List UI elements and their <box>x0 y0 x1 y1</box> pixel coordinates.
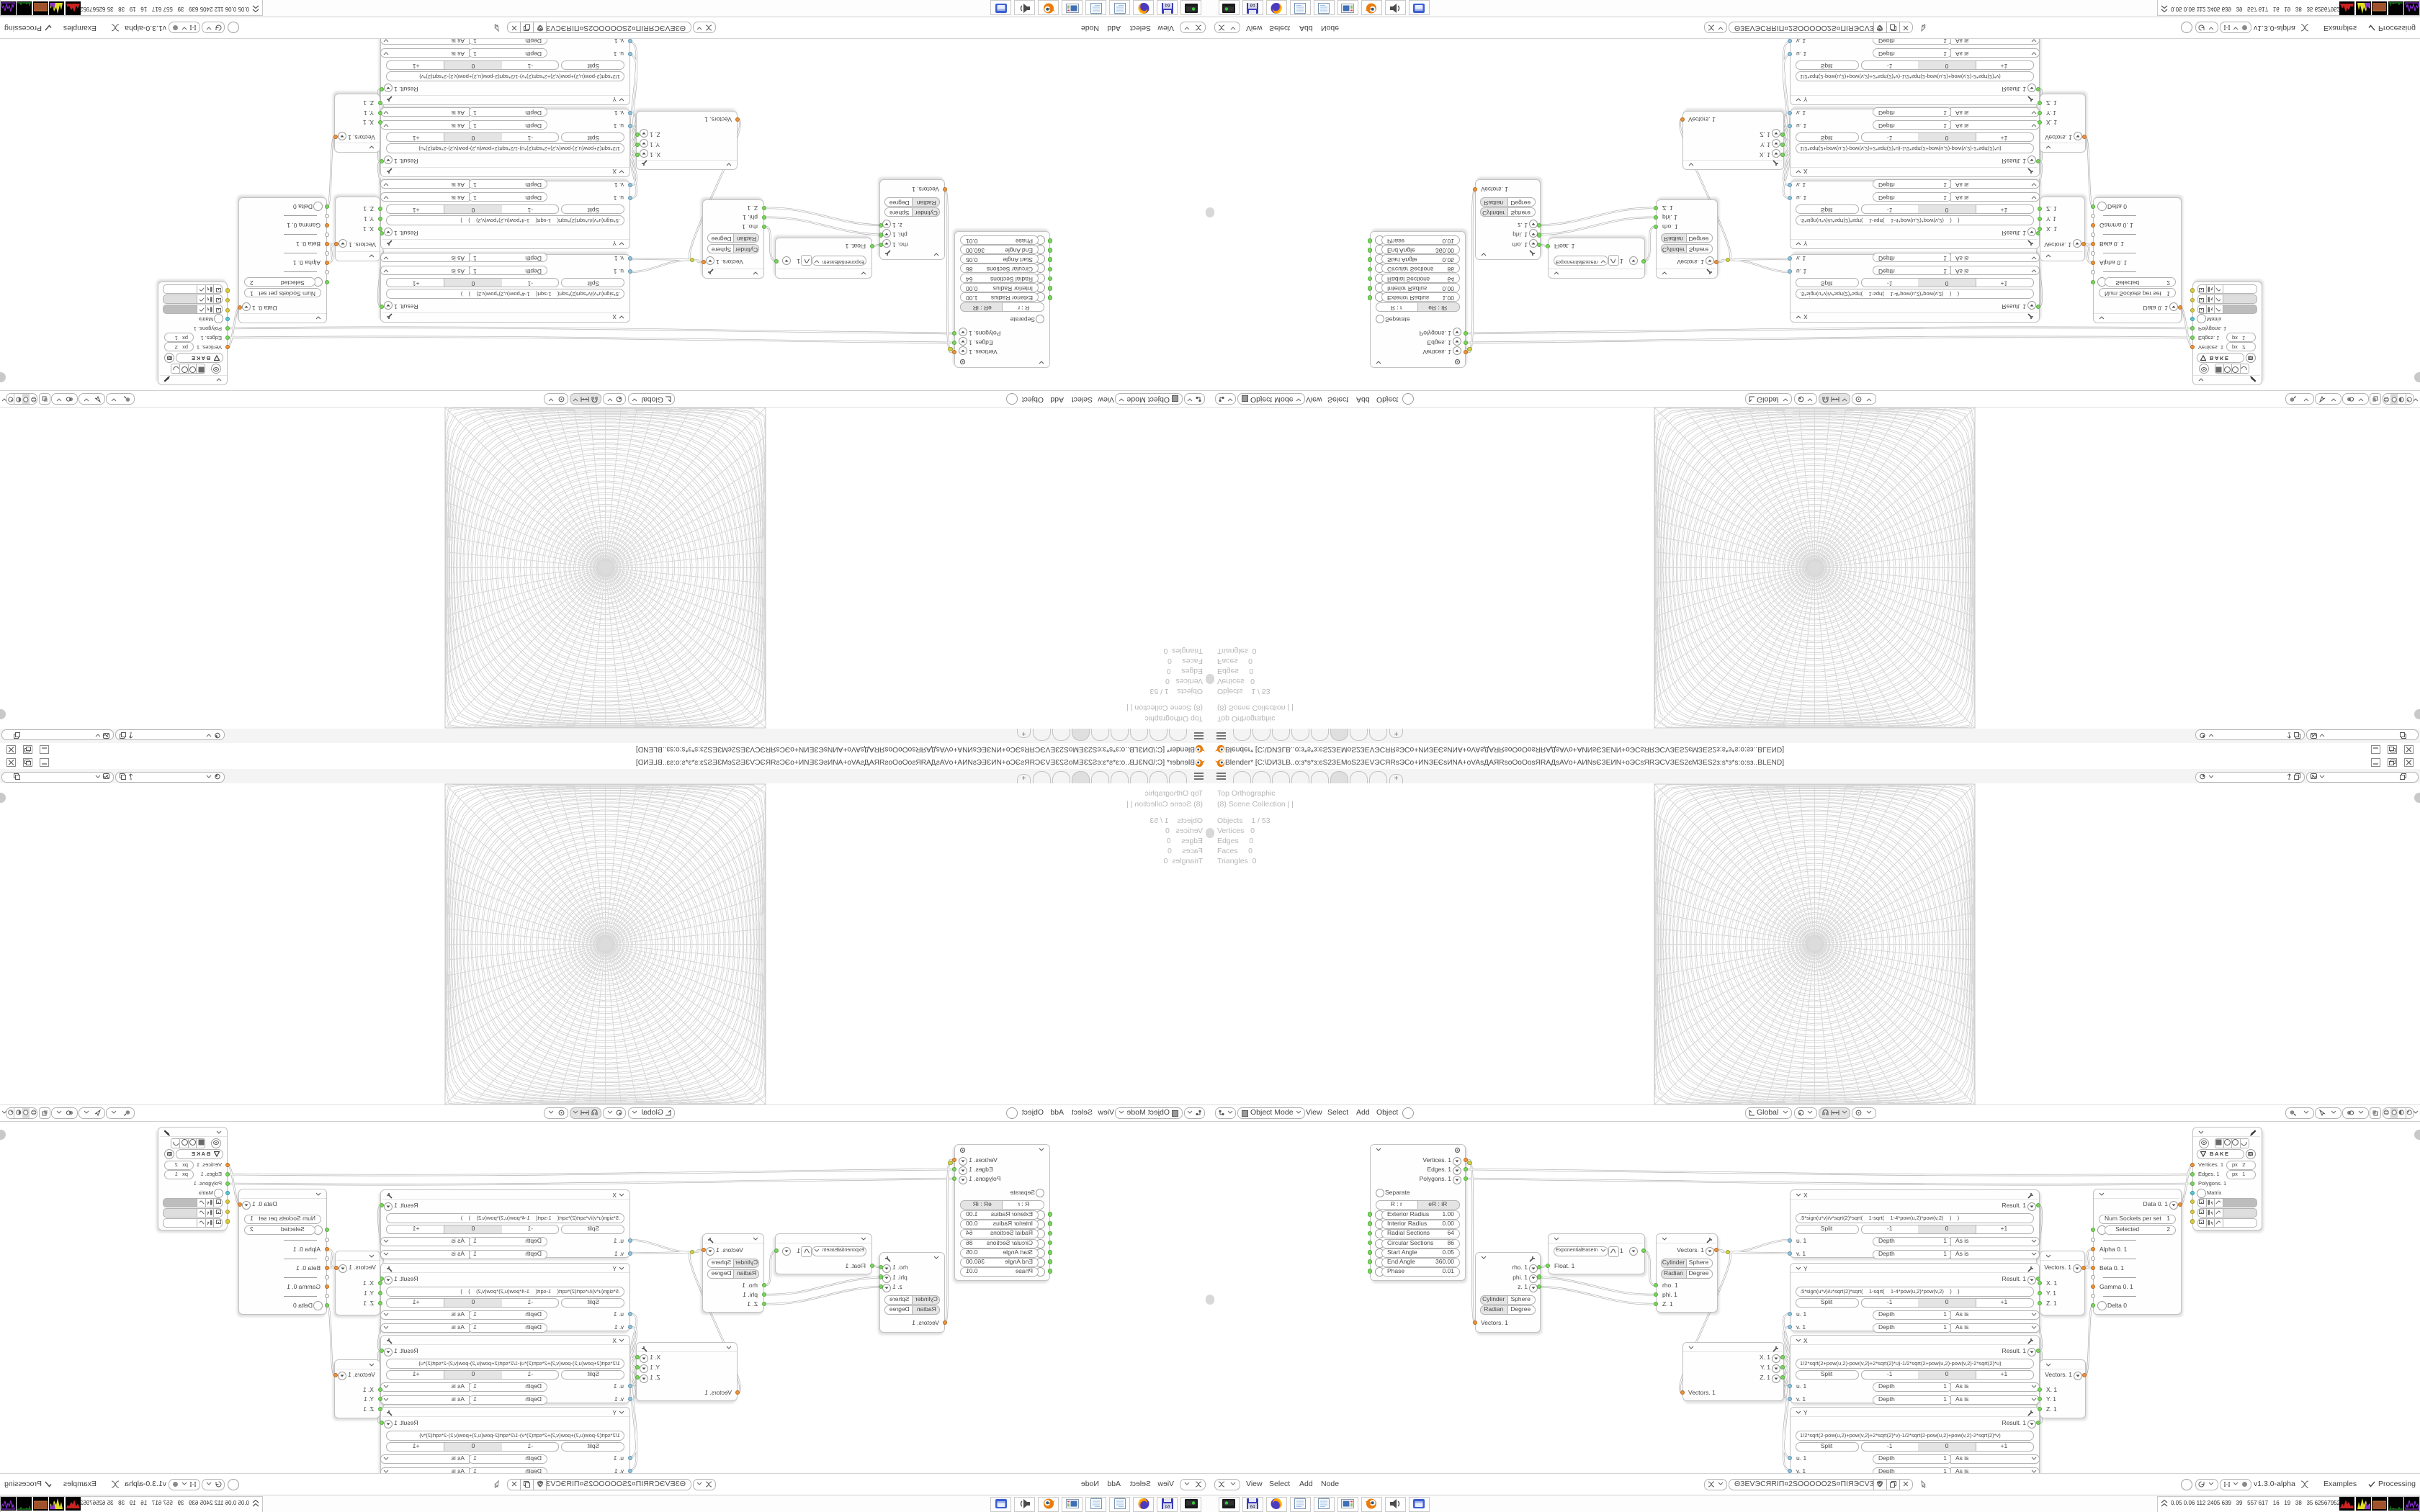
svg-text:64: 64 <box>1250 3 1255 7</box>
svg-text:64: 64 <box>1250 1506 1255 1510</box>
svg-text:64: 64 <box>1165 3 1170 7</box>
svg-text:64: 64 <box>1165 1506 1170 1510</box>
